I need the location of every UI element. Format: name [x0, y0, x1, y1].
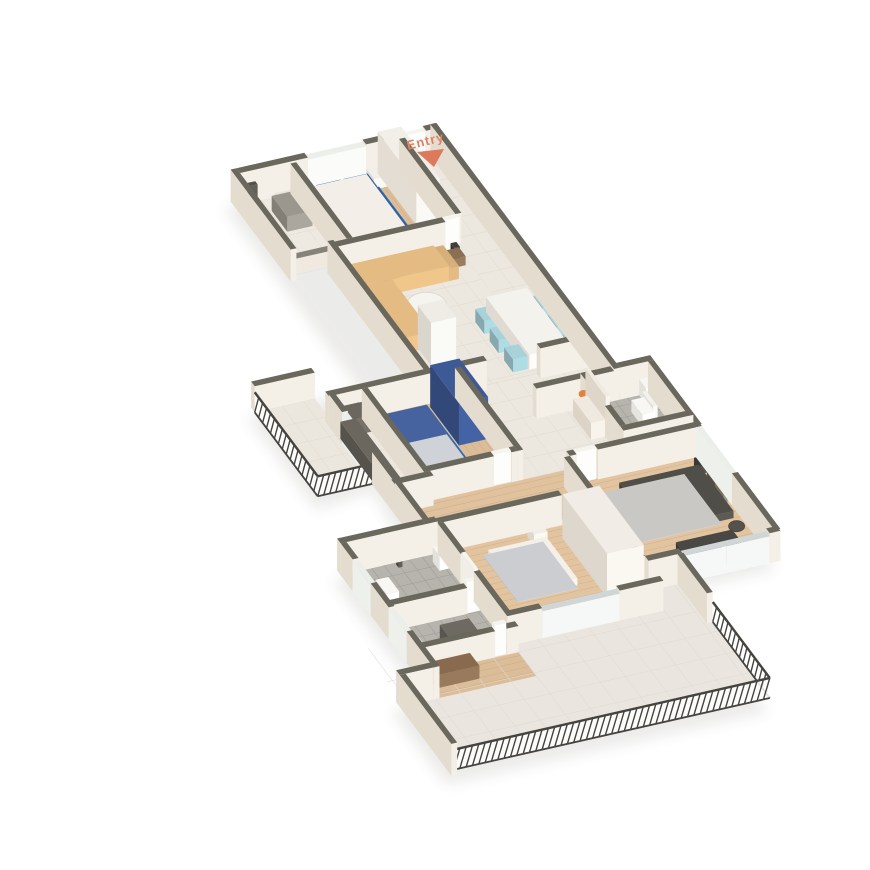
fridge	[418, 299, 456, 365]
render-area: Entry	[0, 0, 870, 870]
generated-scene	[223, 123, 780, 785]
floorplan-canvas: Entry	[0, 0, 870, 870]
